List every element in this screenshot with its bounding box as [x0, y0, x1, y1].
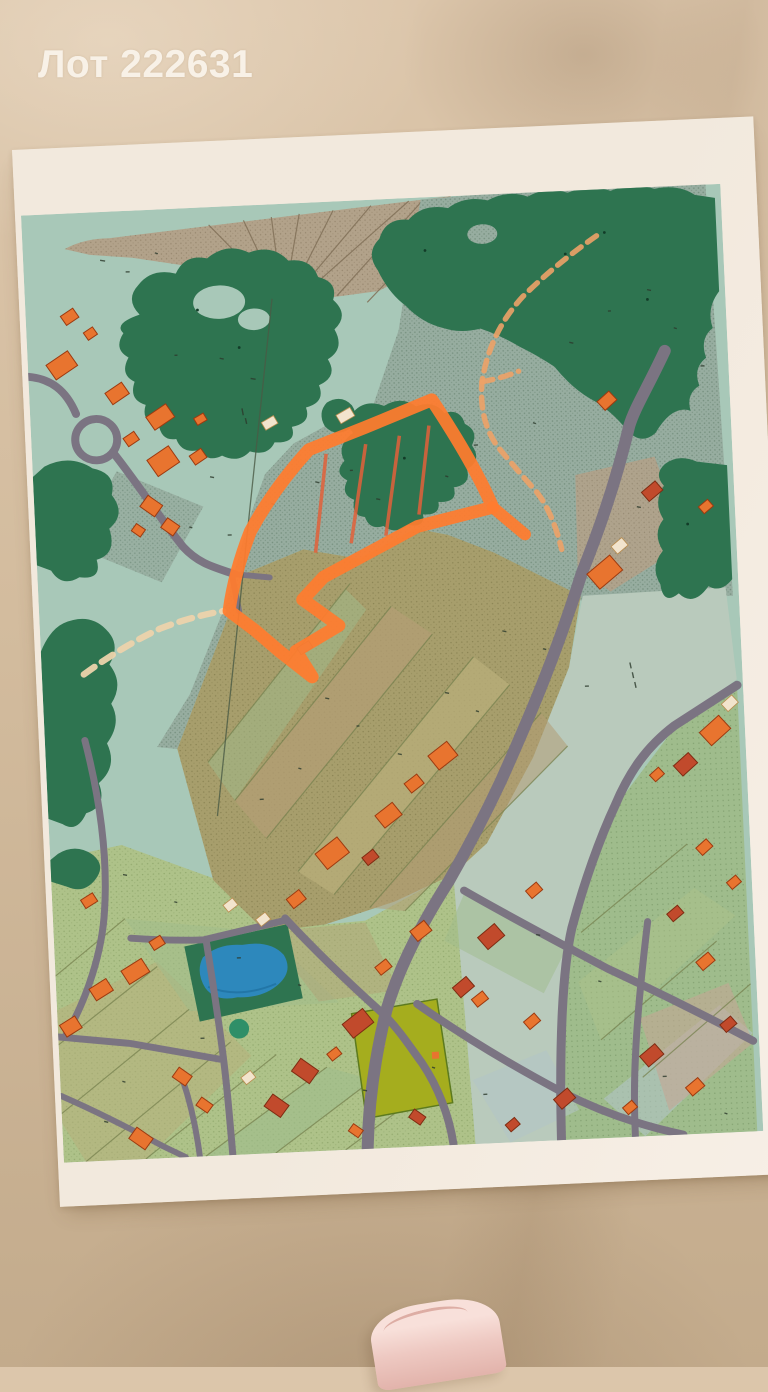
lot-title: Лот 222631: [38, 44, 253, 87]
photo-background: { "title": { "text": "Лот 222631" }, "pa…: [0, 0, 768, 1367]
paper-sheet: [12, 116, 768, 1207]
cadastral-map-svg: [21, 184, 763, 1163]
cadastral-map: [21, 184, 763, 1163]
pink-fabric-roll: [367, 1292, 508, 1391]
